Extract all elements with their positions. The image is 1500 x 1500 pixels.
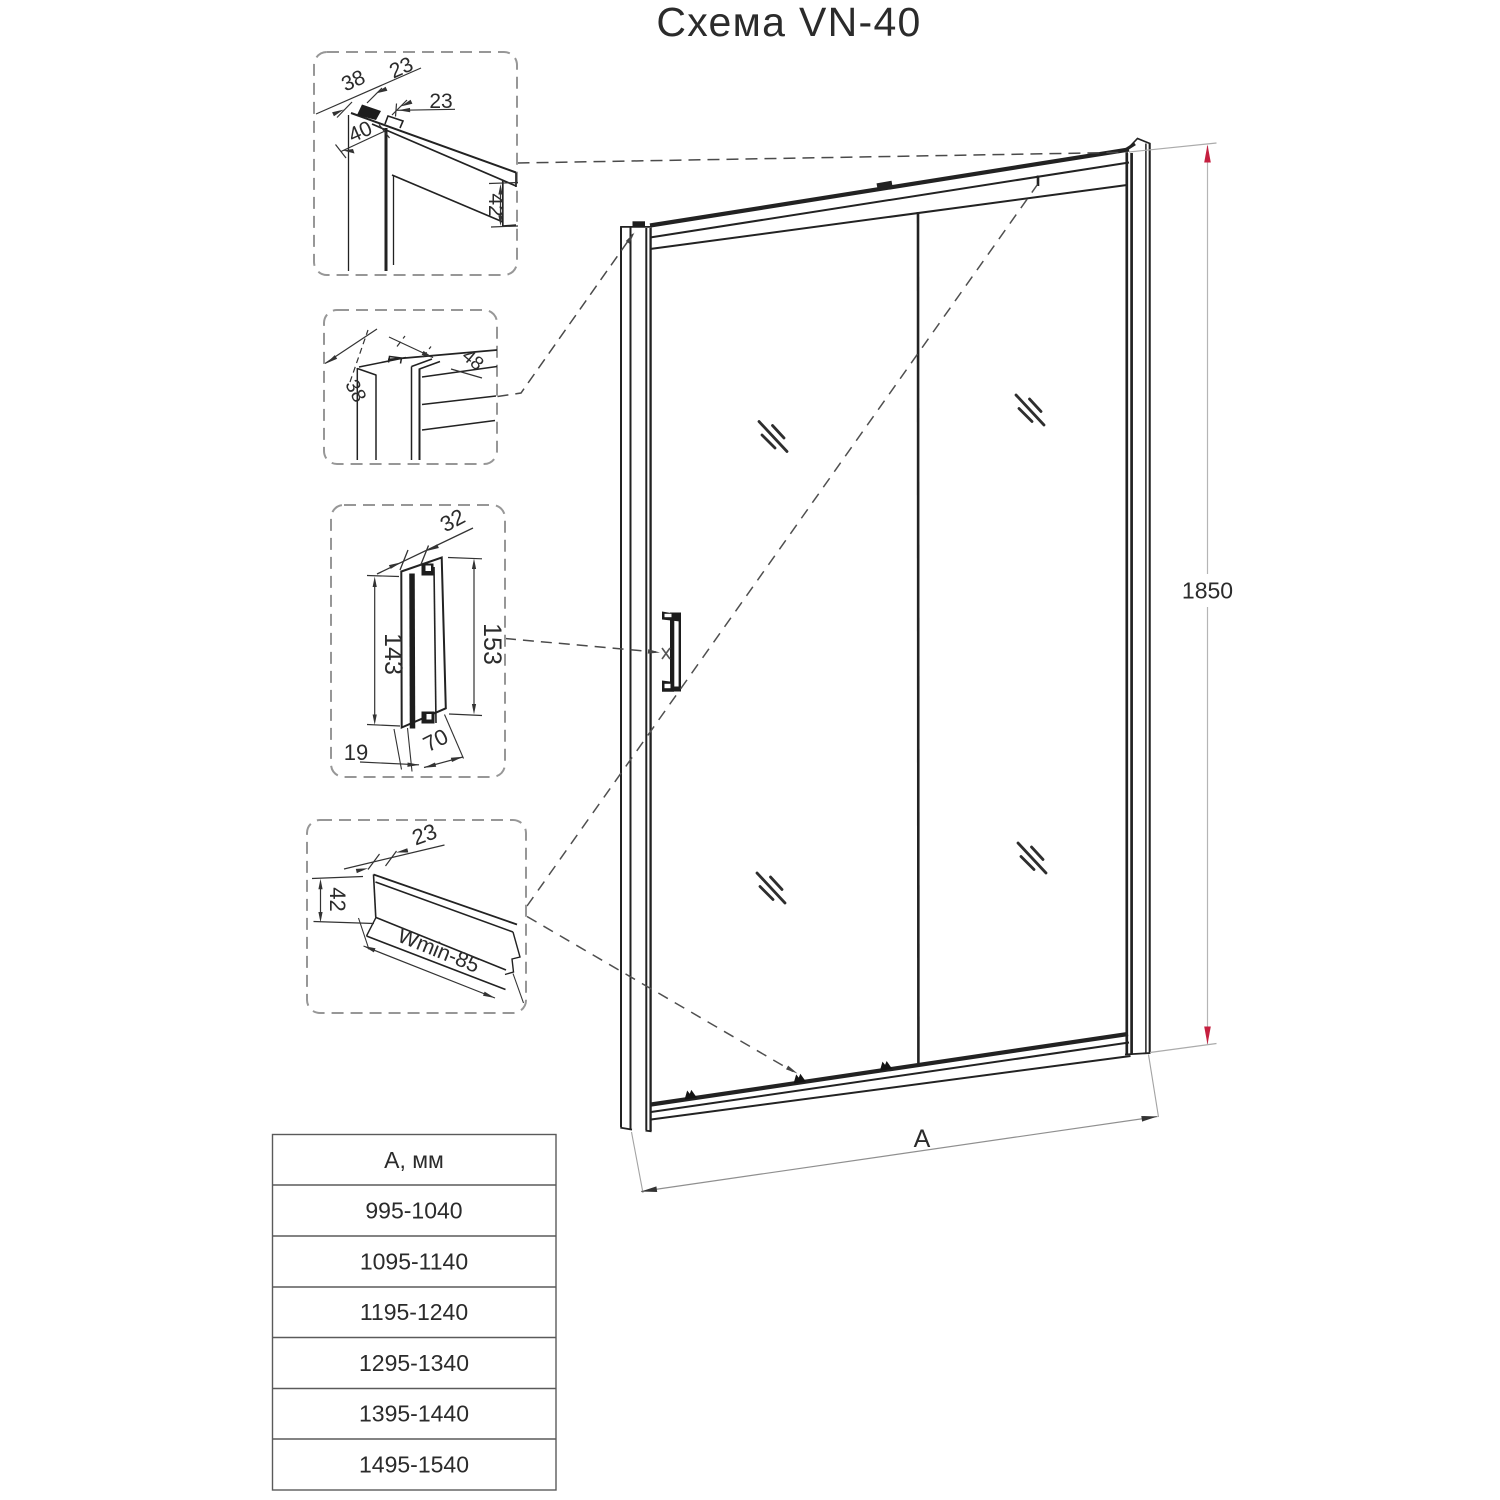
svg-text:1850: 1850: [1182, 578, 1233, 604]
svg-text:1195-1240: 1195-1240: [360, 1299, 468, 1325]
svg-text:1495-1540: 1495-1540: [359, 1452, 469, 1478]
svg-text:153: 153: [478, 623, 506, 665]
svg-text:А, мм: А, мм: [384, 1147, 444, 1173]
svg-text:42: 42: [484, 193, 507, 216]
svg-text:19: 19: [344, 740, 368, 765]
svg-text:143: 143: [379, 633, 407, 675]
svg-text:A: A: [914, 1125, 931, 1153]
svg-text:1295-1340: 1295-1340: [359, 1350, 469, 1376]
svg-text:1395-1440: 1395-1440: [359, 1401, 469, 1427]
svg-text:1095-1140: 1095-1140: [360, 1249, 468, 1275]
svg-text:23: 23: [429, 90, 452, 113]
svg-text:Схема VN-40: Схема VN-40: [656, 0, 921, 45]
svg-text:42: 42: [325, 887, 350, 911]
svg-text:995-1040: 995-1040: [365, 1198, 462, 1224]
